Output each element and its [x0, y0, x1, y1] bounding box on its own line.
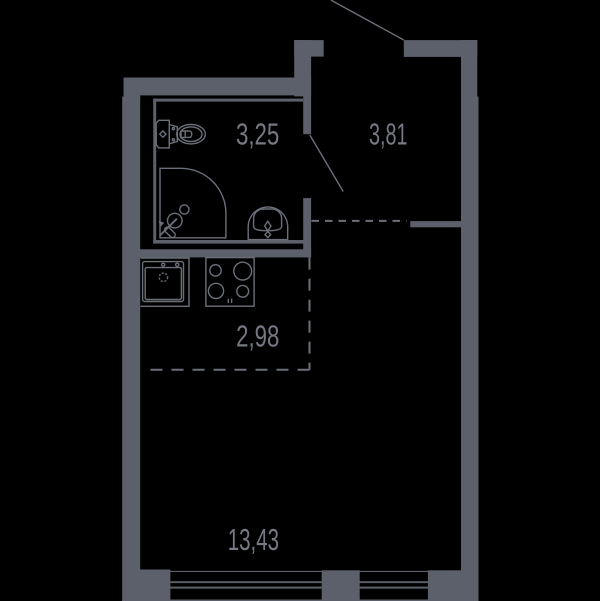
svg-text:13,43: 13,43 — [228, 522, 279, 557]
svg-text:3,81: 3,81 — [369, 116, 408, 151]
svg-text:3,25: 3,25 — [236, 117, 279, 152]
svg-text:2,98: 2,98 — [236, 318, 279, 353]
